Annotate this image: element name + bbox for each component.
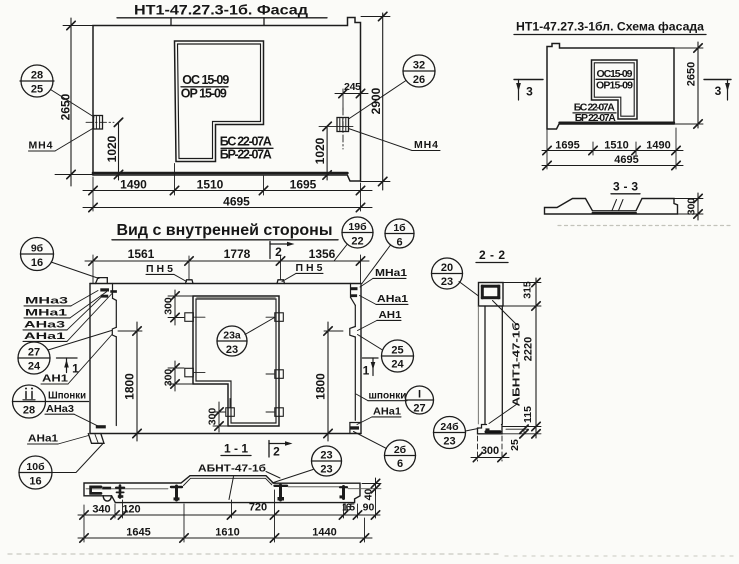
svg-text:1: 1	[72, 362, 79, 376]
svg-text:23: 23	[320, 449, 332, 461]
svg-text:23: 23	[441, 276, 453, 288]
svg-text:1510: 1510	[604, 140, 628, 152]
svg-text:300: 300	[481, 445, 499, 457]
svg-text:10б: 10б	[26, 461, 45, 473]
svg-text:МН4: МН4	[29, 140, 53, 152]
svg-text:АН1: АН1	[379, 309, 402, 321]
svg-text:6: 6	[396, 236, 402, 248]
svg-text:340: 340	[92, 504, 110, 516]
svg-text:АН1: АН1	[42, 373, 68, 385]
svg-text:1020: 1020	[105, 135, 119, 162]
svg-text:НТ1-47.27.3-1бл. Схема фасада: НТ1-47.27.3-1бл. Схема фасада	[516, 20, 704, 34]
svg-text:25: 25	[391, 344, 403, 356]
svg-text:1695: 1695	[555, 140, 579, 152]
svg-text:ОС15-09: ОС15-09	[597, 68, 633, 80]
svg-text:115: 115	[522, 406, 534, 423]
svg-text:1800: 1800	[123, 373, 137, 400]
svg-text:1695: 1695	[290, 178, 317, 192]
svg-text:БС 22-07А: БС 22-07А	[220, 134, 272, 148]
svg-text:1440: 1440	[312, 527, 336, 539]
svg-text:I: I	[418, 388, 421, 400]
svg-text:1610: 1610	[215, 527, 239, 539]
svg-text:2б: 2б	[394, 444, 407, 456]
svg-text:1645: 1645	[126, 527, 150, 539]
svg-text:27: 27	[28, 346, 40, 358]
svg-text:2: 2	[273, 445, 280, 459]
svg-text:АНа1: АНа1	[28, 433, 58, 445]
svg-text:1778: 1778	[224, 247, 251, 261]
svg-text:1б: 1б	[393, 222, 406, 234]
svg-text:БР 22-07А: БР 22-07А	[575, 112, 616, 124]
svg-text:32: 32	[413, 60, 425, 72]
svg-text:2650: 2650	[59, 93, 73, 120]
svg-text:23: 23	[443, 436, 455, 448]
svg-text:16: 16	[31, 257, 43, 269]
svg-text:2-2: 2-2	[479, 248, 505, 262]
svg-text:300: 300	[207, 408, 219, 426]
svg-text:28: 28	[31, 69, 43, 81]
svg-text:3: 3	[526, 85, 533, 99]
svg-text:19б: 19б	[348, 221, 367, 233]
svg-text:2650: 2650	[686, 62, 698, 86]
svg-text:НТ1-47.27.3-1б. Фасад: НТ1-47.27.3-1б. Фасад	[134, 2, 308, 18]
svg-text:28: 28	[23, 404, 35, 416]
svg-text:300: 300	[163, 297, 175, 315]
svg-text:3-3: 3-3	[613, 180, 638, 194]
svg-text:245: 245	[344, 81, 361, 93]
svg-text:АНа1: АНа1	[24, 331, 66, 342]
svg-text:ОР15-09: ОР15-09	[596, 80, 633, 92]
svg-text:20: 20	[441, 262, 453, 274]
svg-text:300: 300	[163, 369, 175, 387]
svg-text:165: 165	[342, 503, 355, 514]
svg-text:24: 24	[391, 359, 404, 371]
svg-text:МНа1: МНа1	[25, 308, 68, 319]
svg-text:300: 300	[686, 198, 698, 216]
svg-text:1356: 1356	[309, 247, 336, 261]
svg-text:МНа1: МНа1	[375, 267, 407, 279]
svg-text:40: 40	[363, 489, 375, 501]
svg-text:25: 25	[31, 84, 43, 96]
svg-text:ОС 15-09: ОС 15-09	[182, 73, 229, 87]
svg-text:27: 27	[413, 403, 425, 415]
svg-text:120: 120	[122, 504, 140, 516]
svg-text:23а: 23а	[223, 330, 241, 342]
svg-text:АБНТ1-47-1б: АБНТ1-47-1б	[511, 322, 523, 407]
svg-text:ПН5: ПН5	[296, 262, 323, 274]
svg-text:шпонки: шпонки	[369, 389, 407, 401]
svg-text:1490: 1490	[646, 140, 670, 152]
svg-text:25: 25	[509, 439, 521, 451]
svg-text:6: 6	[397, 458, 403, 470]
svg-text:3: 3	[715, 84, 722, 98]
svg-text:1490: 1490	[120, 178, 147, 192]
svg-text:АНа3: АНа3	[46, 403, 74, 415]
svg-text:АНа1: АНа1	[373, 406, 401, 418]
svg-text:4695: 4695	[614, 154, 638, 166]
svg-text:2: 2	[275, 245, 282, 259]
svg-text:4695: 4695	[223, 195, 250, 209]
svg-text:АНа1: АНа1	[377, 293, 408, 305]
svg-text:16: 16	[29, 475, 41, 487]
svg-text:Шпонки: Шпонки	[48, 389, 86, 401]
svg-text:Вид с внутренней стороны: Вид с внутренней стороны	[117, 222, 333, 239]
svg-text:1-1: 1-1	[224, 442, 248, 456]
svg-text:23: 23	[226, 344, 238, 356]
svg-text:24: 24	[28, 361, 41, 373]
svg-text:АБНТ-47-1б: АБНТ-47-1б	[198, 463, 267, 475]
svg-text:1800: 1800	[314, 373, 328, 400]
svg-text:ОР 15-09: ОР 15-09	[181, 86, 227, 100]
svg-text:1561: 1561	[128, 247, 155, 261]
svg-text:26: 26	[413, 74, 425, 86]
svg-text:2220: 2220	[523, 337, 535, 361]
svg-text:1020: 1020	[313, 137, 327, 164]
svg-text:БР-22-07А: БР-22-07А	[220, 148, 272, 162]
svg-text:2900: 2900	[369, 87, 383, 114]
svg-text:720: 720	[249, 502, 267, 514]
svg-text:22: 22	[351, 235, 363, 247]
svg-text:ПН5: ПН5	[146, 263, 173, 275]
svg-text:90: 90	[363, 502, 375, 514]
svg-text:1510: 1510	[197, 178, 224, 192]
svg-text:23: 23	[320, 464, 332, 476]
svg-text:МНа3: МНа3	[25, 296, 68, 307]
svg-text:АНа3: АНа3	[24, 320, 65, 331]
svg-text:МН4: МН4	[414, 139, 438, 151]
svg-text:1: 1	[363, 364, 370, 378]
svg-text:24б: 24б	[440, 421, 459, 433]
svg-text:9б: 9б	[31, 243, 44, 255]
svg-text:315: 315	[522, 281, 534, 299]
